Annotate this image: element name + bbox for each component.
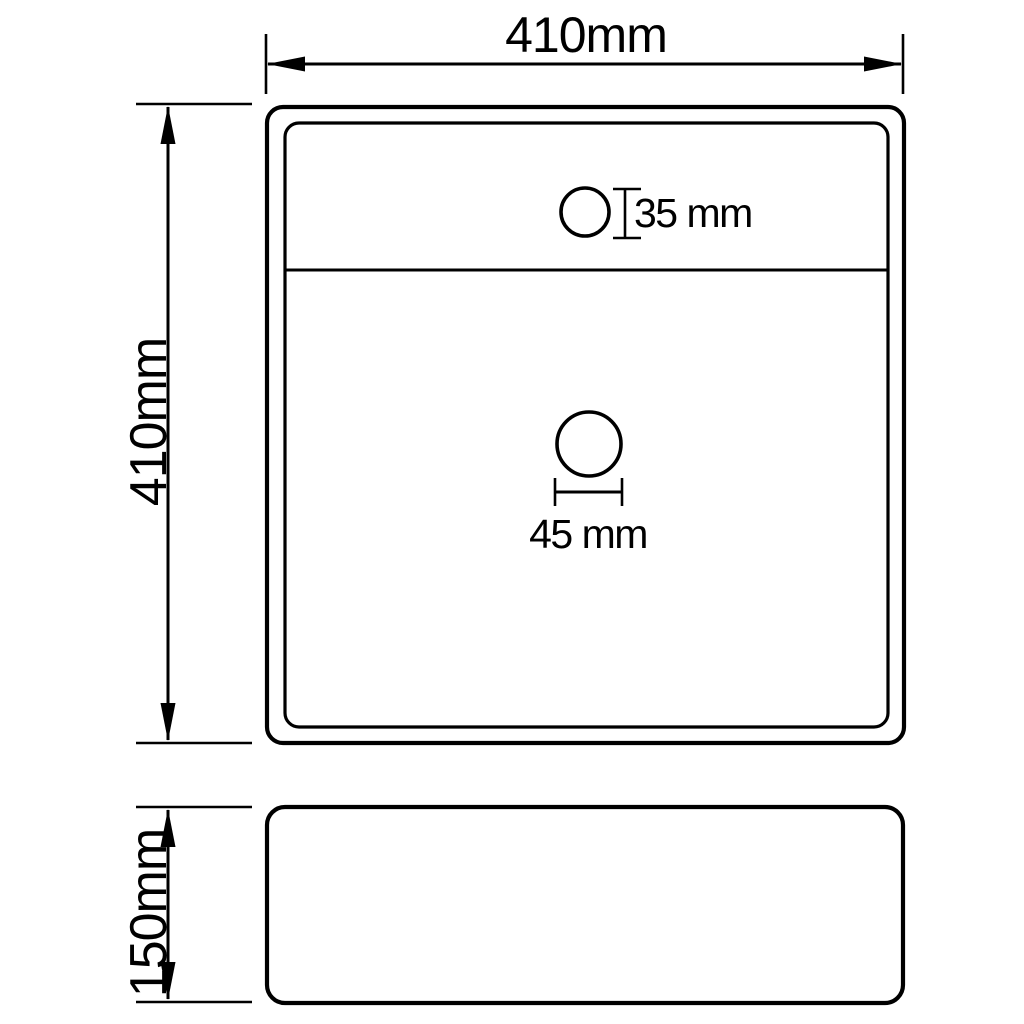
drain-hole-dimension-label: 45 mm — [529, 511, 647, 557]
left-depth-dimension-label: 410mm — [120, 338, 178, 506]
basin-side-view — [267, 807, 903, 1003]
basin-inner-edge — [285, 123, 888, 727]
basin-outer-edge — [267, 107, 904, 743]
side-height-dimension: 150mm — [120, 807, 252, 1002]
basin-side-outline — [267, 807, 903, 1003]
faucet-hole-dimension: 35 mm — [613, 189, 752, 238]
depth-arrowhead-bottom — [161, 703, 176, 741]
drain-hole — [557, 412, 621, 476]
depth-arrowhead-top — [161, 106, 176, 144]
drawing-canvas: 410mm 410mm 35 mm — [0, 0, 1024, 1024]
drain-hole-dimension: 45 mm — [529, 478, 647, 557]
faucet-hole — [561, 188, 609, 236]
width-arrowhead-left — [267, 57, 305, 72]
faucet-hole-dimension-label: 35 mm — [634, 190, 752, 236]
product-dimension-drawing: 410mm 410mm 35 mm — [0, 0, 1024, 1024]
basin-plan-view — [267, 107, 904, 743]
width-arrowhead-right — [864, 57, 902, 72]
top-width-dimension: 410mm — [266, 7, 903, 94]
left-depth-dimension: 410mm — [120, 104, 252, 743]
side-height-dimension-label: 150mm — [120, 829, 178, 997]
top-width-dimension-label: 410mm — [505, 7, 667, 63]
